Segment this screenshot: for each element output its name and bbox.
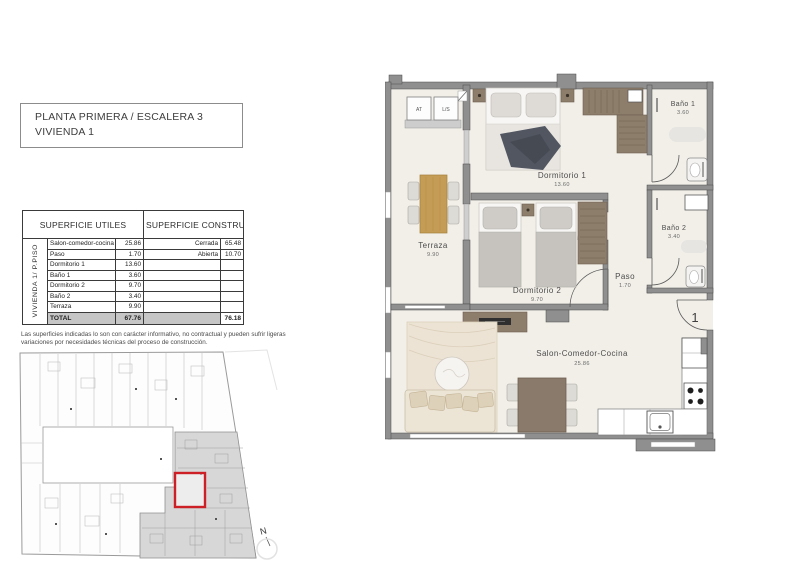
row-m2: 3.60	[116, 270, 144, 281]
plan-title-line1: PLANTA PRIMERA / ESCALERA 3	[35, 110, 242, 125]
row-name: Dormitorio 1	[48, 260, 116, 271]
room-area-dormitorio2: 9.70	[531, 297, 543, 303]
room-label-dormitorio1: Dormitorio 1	[538, 171, 587, 180]
total-label: TOTAL	[48, 312, 116, 324]
plan-sheet: PLANTA PRIMERA / ESCALERA 3 VIVIENDA 1 S…	[0, 0, 799, 565]
room-label-dormitorio2: Dormitorio 2	[513, 286, 562, 295]
entrance-number-label: 1	[691, 310, 698, 325]
table-row: Baño 2 3.40	[23, 291, 244, 302]
table-row: VIVIENDA 1/ P.PISO Salon-comedor-cocina …	[23, 239, 244, 250]
north-label: N	[259, 525, 268, 536]
row-cons-name: Abierta	[144, 249, 221, 260]
row-m2: 13.60	[116, 260, 144, 271]
table-row: Baño 1 3.60	[23, 270, 244, 281]
room-area-salon: 25.86	[574, 361, 590, 367]
construidas-header: SUPERFICIE CONSTRUIDAS	[144, 211, 244, 239]
row-cons-m2: 10.70	[221, 249, 244, 260]
disclaimer-text: Las superficies indicadas lo son con car…	[21, 331, 309, 347]
table-row: Dormitorio 2 9.70	[23, 281, 244, 292]
side-label-cell: VIVIENDA 1/ P.PISO	[23, 239, 48, 325]
north-arrow: N	[257, 525, 277, 559]
table-row: Dormitorio 1 13.60	[23, 260, 244, 271]
row-m2: 3.40	[116, 291, 144, 302]
surfaces-table: SUPERFICIE UTILES SUPERFICIE CONSTRUIDAS…	[22, 210, 244, 325]
room-area-paso: 1.70	[619, 283, 631, 289]
row-m2: 1.70	[116, 249, 144, 260]
room-area-terraza: 9.90	[427, 252, 439, 258]
row-cons-m2: 65.48	[221, 239, 244, 250]
site-key-plan: N	[15, 348, 305, 563]
double-bed-icon	[473, 88, 574, 170]
row-m2: 9.70	[116, 281, 144, 292]
closet-at-label: AT	[416, 107, 422, 113]
side-label: VIVIENDA 1/ P.PISO	[32, 244, 39, 317]
room-label-paso: Paso	[615, 272, 635, 281]
row-cons-name: Cerrada	[144, 239, 221, 250]
room-area-bano1: 3.60	[677, 110, 689, 116]
utiles-header: SUPERFICIE UTILES	[23, 211, 144, 239]
room-area-dormitorio1: 13.60	[554, 182, 570, 188]
room-label-terraza: Terraza	[418, 241, 448, 250]
table-row: Terraza 9.90	[23, 302, 244, 313]
toilet-icon	[686, 266, 705, 287]
total-row: TOTAL 67.76 76.18	[23, 312, 244, 324]
rug-sofa-icon	[405, 322, 497, 432]
closet-ls-label: L/S	[442, 107, 450, 113]
row-name: Terraza	[48, 302, 116, 313]
row-m2: 25.86	[116, 239, 144, 250]
table-row: Paso 1.70 Abierta 10.70	[23, 249, 244, 260]
row-name: Salon-comedor-cocina	[48, 239, 116, 250]
plan-title-line2: VIVIENDA 1	[35, 125, 242, 140]
total-m2: 67.76	[116, 312, 144, 324]
floor-plan: AT L/S	[385, 72, 718, 457]
room-label-salon: Salon-Comedor-Cocina	[536, 349, 628, 358]
row-m2: 9.90	[116, 302, 144, 313]
sink-icon	[647, 411, 673, 433]
row-name: Baño 2	[48, 291, 116, 302]
row-name: Dormitorio 2	[48, 281, 116, 292]
room-label-bano2: Baño 2	[662, 225, 687, 232]
title-box: PLANTA PRIMERA / ESCALERA 3 VIVIENDA 1	[20, 103, 243, 148]
stove-icon	[684, 383, 707, 409]
wardrobe-dorm2-icon	[578, 202, 607, 264]
row-name: Baño 1	[48, 270, 116, 281]
row-name: Paso	[48, 249, 116, 260]
unit-highlight-box	[175, 473, 205, 507]
room-area-bano2: 3.40	[668, 234, 680, 240]
room-label-bano1: Baño 1	[671, 101, 696, 108]
total-cons-m2: 76.18	[221, 312, 244, 324]
toilet-icon	[687, 158, 707, 181]
